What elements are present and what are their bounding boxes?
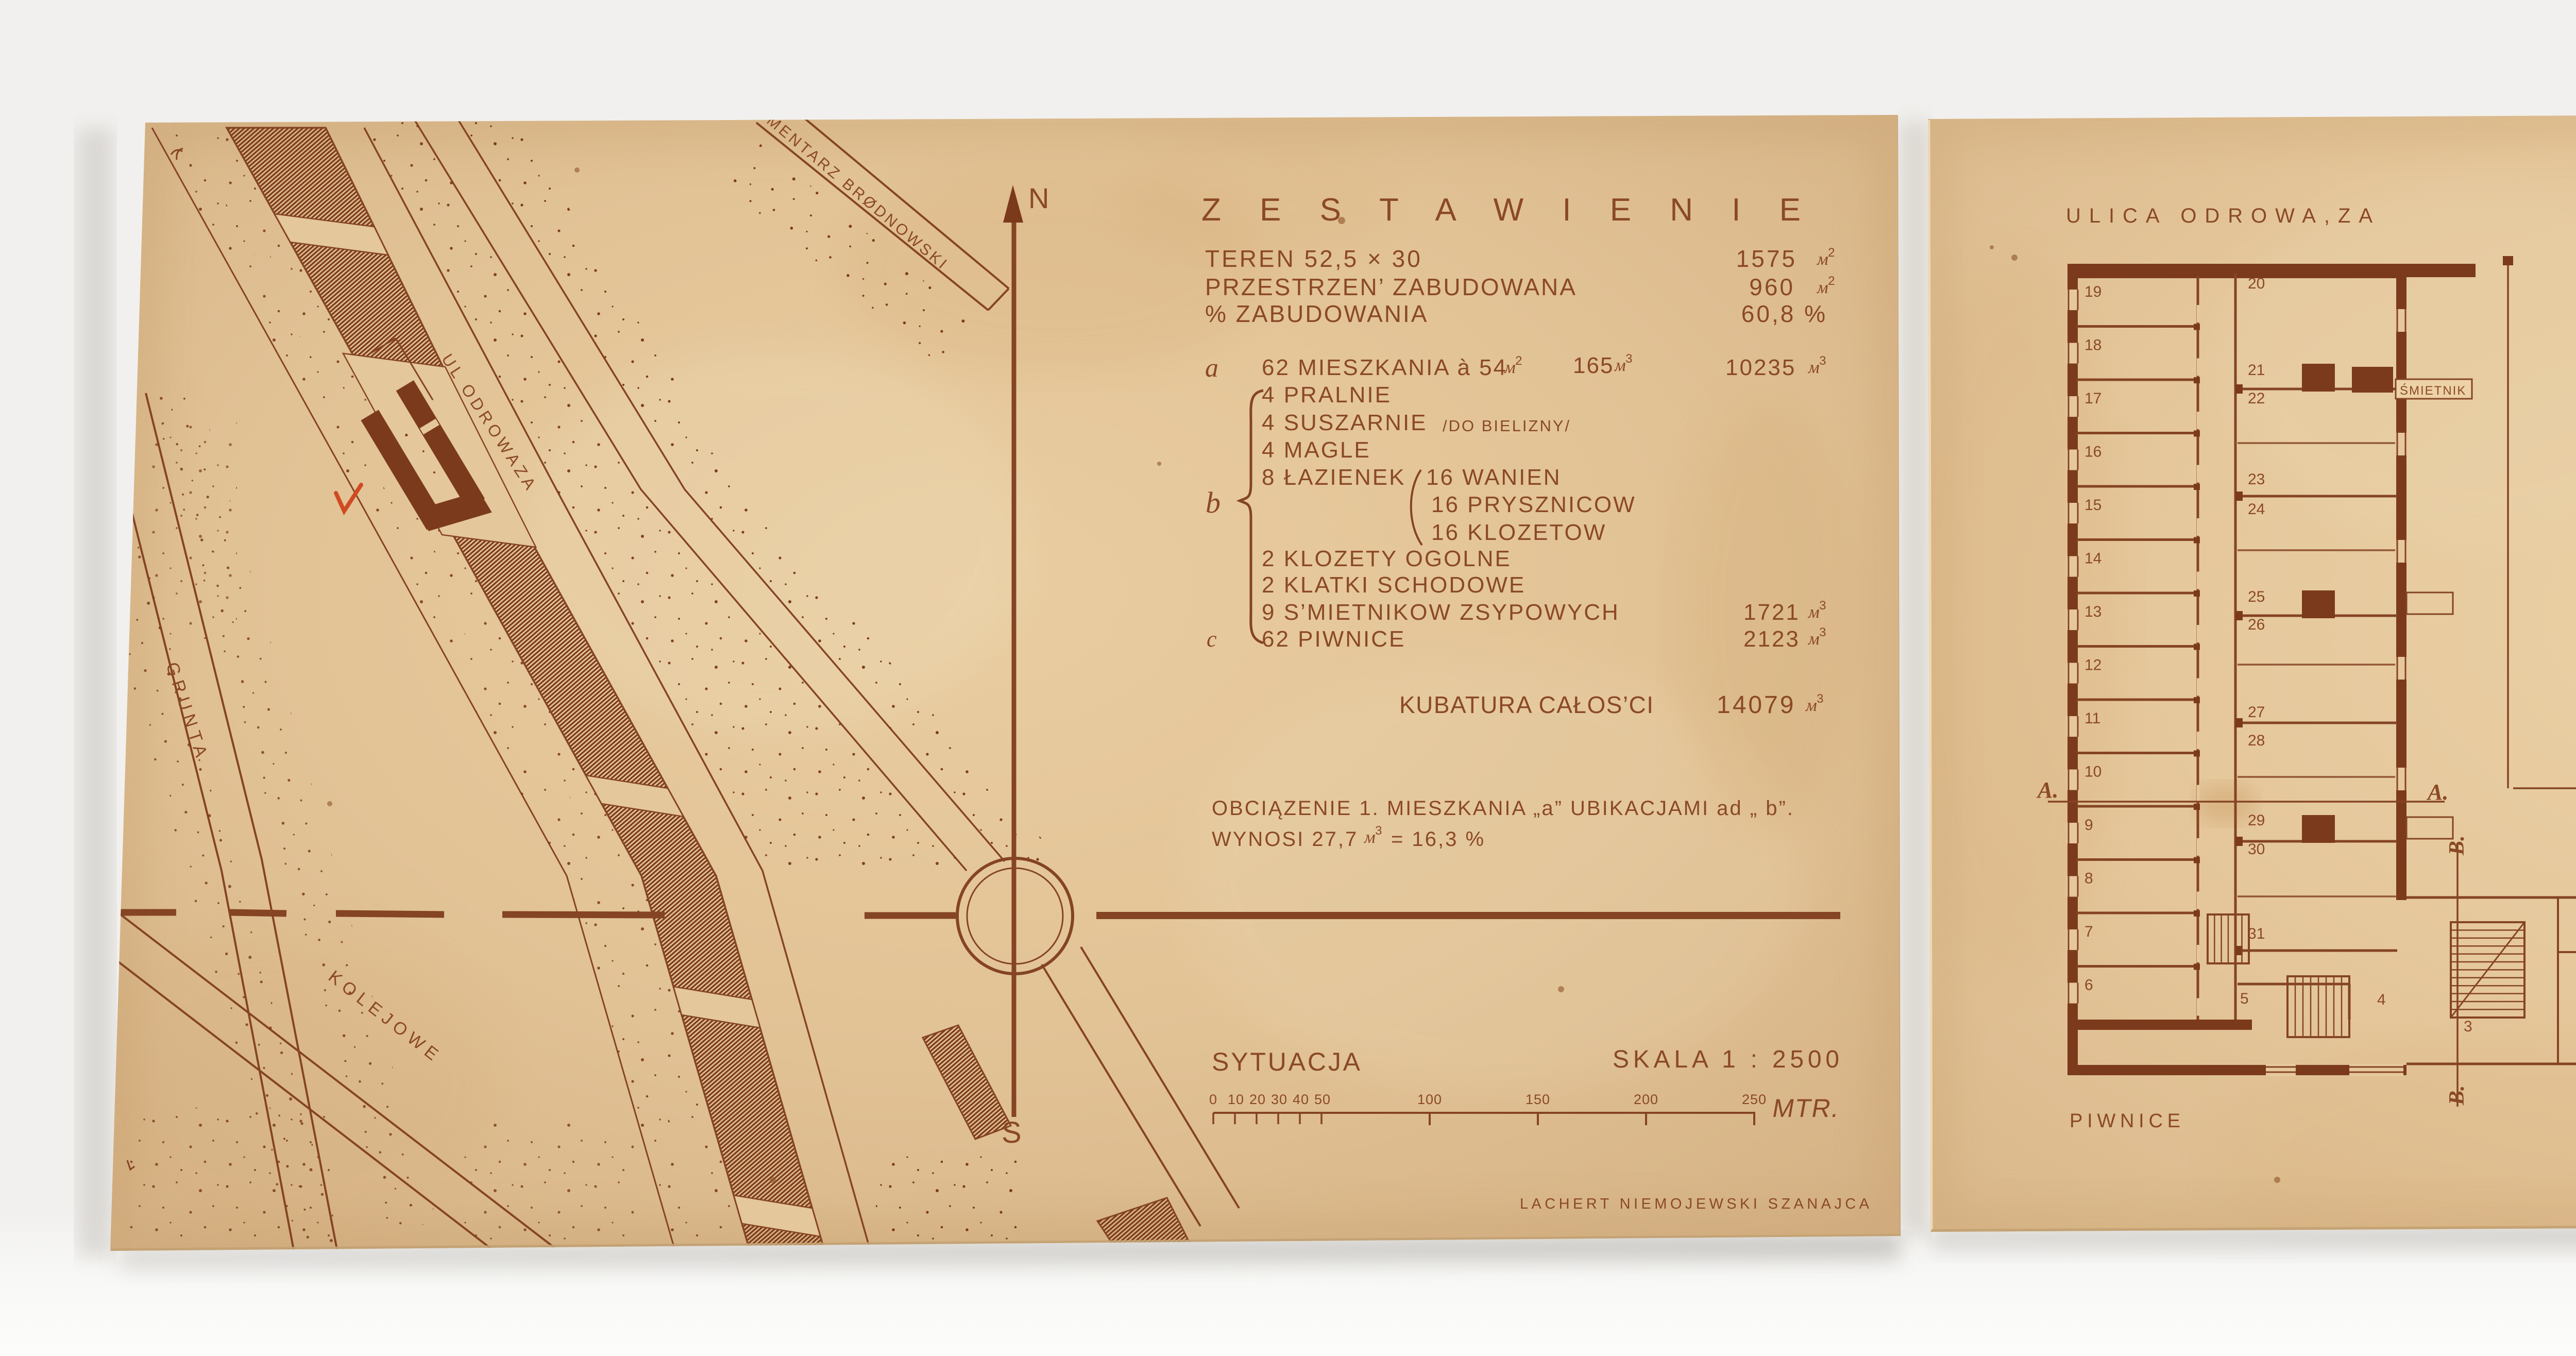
svg-text:S: S xyxy=(1002,1116,1022,1149)
svg-text:OBCIĄZENIE 1. MIESZKANIA „a”: OBCIĄZENIE 1. MIESZKANIA „a” UBIKACJAMI … xyxy=(1212,797,1794,820)
svg-text:3: 3 xyxy=(1375,824,1382,838)
svg-text:9: 9 xyxy=(2084,817,2093,834)
svg-text:8: 8 xyxy=(2084,870,2093,887)
svg-text:14: 14 xyxy=(2084,550,2102,567)
svg-text:/DO BIELIZNY/: /DO BIELIZNY/ xyxy=(1443,417,1571,435)
svg-text:3: 3 xyxy=(1819,599,1826,613)
svg-text:960: 960 xyxy=(1749,274,1795,300)
svg-text:м: м xyxy=(1817,250,1828,269)
svg-text:1721: 1721 xyxy=(1743,600,1800,625)
svg-text:21: 21 xyxy=(2248,362,2265,379)
svg-text:19: 19 xyxy=(2084,283,2102,300)
svg-text:B.: B. xyxy=(2445,1085,2469,1106)
svg-text:100: 100 xyxy=(1417,1092,1442,1107)
svg-text:3: 3 xyxy=(1817,692,1823,706)
svg-text:18: 18 xyxy=(2084,337,2102,354)
svg-text:16 WANIEN: 16 WANIEN xyxy=(1426,465,1562,490)
svg-text:40: 40 xyxy=(1293,1092,1309,1107)
svg-text:b: b xyxy=(1206,486,1221,519)
svg-text:7: 7 xyxy=(2084,923,2093,940)
svg-text:a: a xyxy=(1205,353,1218,383)
svg-text:4 PRALNIE: 4 PRALNIE xyxy=(1262,382,1392,408)
svg-text:3: 3 xyxy=(2464,1018,2472,1035)
svg-text:4: 4 xyxy=(2377,991,2386,1008)
svg-text:4 MAGLE: 4 MAGLE xyxy=(1262,437,1371,463)
svg-text:25: 25 xyxy=(2248,588,2265,605)
svg-text:% ZABUDOWANIA: % ZABUDOWANIA xyxy=(1205,300,1428,327)
svg-text:0: 0 xyxy=(1209,1092,1217,1107)
svg-text:16 KLOZETOW: 16 KLOZETOW xyxy=(1431,520,1606,545)
svg-text:ŚMIETNIK: ŚMIETNIK xyxy=(2400,383,2466,398)
svg-text:16: 16 xyxy=(2084,444,2102,461)
svg-text:WYNOSI 27,7: WYNOSI 27,7 xyxy=(1212,828,1358,851)
svg-text:SYTUACJA: SYTUACJA xyxy=(1212,1047,1361,1076)
svg-text:10235: 10235 xyxy=(1725,355,1796,380)
svg-text:27: 27 xyxy=(2248,704,2265,721)
svg-text:62 PIWNICE: 62 PIWNICE xyxy=(1262,626,1405,652)
svg-text:250: 250 xyxy=(1742,1092,1767,1107)
svg-text:A.: A. xyxy=(2426,779,2448,805)
svg-text:= 16,3 %: = 16,3 % xyxy=(1391,828,1485,851)
svg-text:м: м xyxy=(1364,828,1376,847)
svg-text:30: 30 xyxy=(2248,841,2265,858)
svg-text:14079: 14079 xyxy=(1717,691,1795,719)
svg-text:13: 13 xyxy=(2084,603,2102,620)
svg-text:2: 2 xyxy=(1515,354,1522,368)
svg-text:2 KLOZETY OGOLNE: 2 KLOZETY OGOLNE xyxy=(1262,546,1512,571)
svg-text:165: 165 xyxy=(1573,353,1614,378)
svg-text:15: 15 xyxy=(2084,497,2102,514)
svg-text:2: 2 xyxy=(1828,246,1835,260)
svg-text:23: 23 xyxy=(2248,471,2265,488)
svg-text:8 ŁAZIENEK: 8 ŁAZIENEK xyxy=(1262,465,1405,490)
svg-text:12: 12 xyxy=(2084,657,2102,674)
svg-text:29: 29 xyxy=(2248,812,2265,829)
svg-text:22: 22 xyxy=(2248,390,2265,407)
svg-text:м: м xyxy=(1808,630,1820,649)
svg-text:м: м xyxy=(1805,696,1817,715)
svg-text:PRZESTRZEN’ ZABUDOWANA: PRZESTRZEN’ ZABUDOWANA xyxy=(1205,274,1577,300)
svg-text:50: 50 xyxy=(1314,1092,1331,1107)
svg-text:м: м xyxy=(1808,358,1820,377)
svg-text:c: c xyxy=(1207,626,1217,652)
svg-text:9 S’MIETNIKOW ZSYPOWYCH: 9 S’MIETNIKOW ZSYPOWYCH xyxy=(1262,600,1620,625)
svg-text:4 SUSZARNIE: 4 SUSZARNIE xyxy=(1262,410,1428,435)
svg-text:2: 2 xyxy=(1828,274,1835,288)
svg-text:м: м xyxy=(1808,603,1820,622)
svg-text:MTR.: MTR. xyxy=(1770,1093,1842,1123)
svg-text:200: 200 xyxy=(1634,1092,1658,1107)
svg-text:м: м xyxy=(1614,356,1626,375)
svg-text:10: 10 xyxy=(2084,764,2102,781)
svg-text:60,8 %: 60,8 % xyxy=(1741,300,1827,327)
svg-text:24: 24 xyxy=(2248,501,2265,518)
svg-text:м: м xyxy=(1817,278,1828,297)
svg-text:TEREN 52,5 × 30: TEREN 52,5 × 30 xyxy=(1205,245,1422,272)
svg-text:20: 20 xyxy=(1249,1092,1266,1107)
svg-text:3: 3 xyxy=(1625,352,1632,366)
svg-text:2123: 2123 xyxy=(1743,626,1800,652)
svg-text:A.: A. xyxy=(2036,777,2058,803)
svg-text:16 PRYSZNICOW: 16 PRYSZNICOW xyxy=(1431,492,1636,517)
svg-text:2 KLATKI SCHODOWE: 2 KLATKI SCHODOWE xyxy=(1262,572,1526,598)
svg-text:28: 28 xyxy=(2248,732,2265,749)
svg-text:1575: 1575 xyxy=(1736,245,1797,272)
svg-text:30: 30 xyxy=(1271,1092,1287,1107)
svg-text:62 MIESZKANIA à 54: 62 MIESZKANIA à 54 xyxy=(1262,355,1507,380)
svg-text:3: 3 xyxy=(1819,625,1826,639)
svg-text:10: 10 xyxy=(1228,1092,1244,1107)
svg-text:3: 3 xyxy=(1819,354,1826,368)
svg-text:31: 31 xyxy=(2248,925,2265,942)
svg-text:6: 6 xyxy=(2084,977,2093,994)
svg-text:KUBATURA CAŁOS’CI: KUBATURA CAŁOS’CI xyxy=(1399,691,1653,718)
svg-text:20: 20 xyxy=(2248,275,2265,292)
svg-text:17: 17 xyxy=(2084,390,2102,407)
svg-text:м: м xyxy=(1504,358,1516,377)
svg-text:B.: B. xyxy=(2445,835,2469,856)
svg-text:N: N xyxy=(1028,182,1049,214)
svg-text:150: 150 xyxy=(1526,1092,1550,1107)
svg-text:ULICA ODROWA,ZA: ULICA ODROWA,ZA xyxy=(2066,205,2372,227)
svg-text:11: 11 xyxy=(2084,710,2100,727)
svg-text:26: 26 xyxy=(2248,616,2265,633)
svg-text:5: 5 xyxy=(2240,990,2249,1007)
